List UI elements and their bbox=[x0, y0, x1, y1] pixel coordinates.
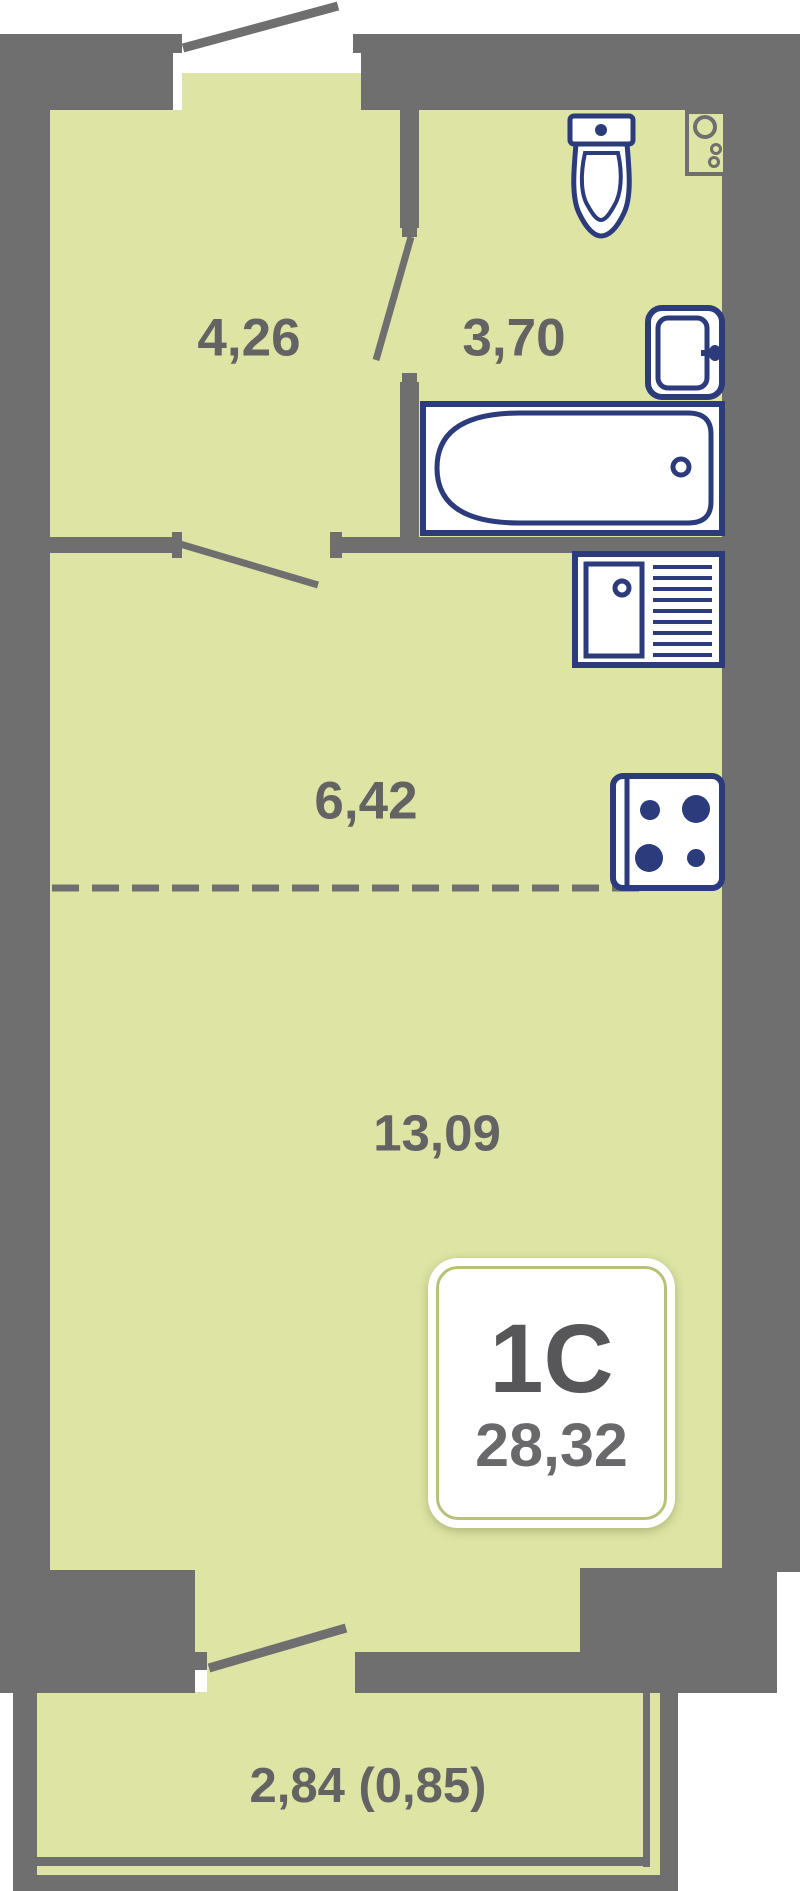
floor-plan-drawing bbox=[0, 0, 800, 1891]
entrance-door-icon bbox=[183, 6, 338, 48]
bathtub-icon bbox=[423, 404, 722, 533]
room-area-hallway: 4,26 bbox=[197, 308, 300, 369]
toilet-icon bbox=[570, 116, 633, 236]
plan-total-area: 28,32 bbox=[475, 1415, 628, 1476]
kitchen-sink-icon bbox=[575, 554, 722, 665]
room-area-living: 13,09 bbox=[373, 1104, 501, 1163]
plan-type-label: 1С bbox=[490, 1310, 614, 1407]
room-area-balcony: 2,84 (0,85) bbox=[250, 1758, 487, 1814]
plan-type-badge-frame: 1С 28,32 bbox=[436, 1266, 667, 1520]
floor-plan: 4,26 3,70 6,42 13,09 2,84 (0,85) 1С 28,3… bbox=[0, 0, 800, 1891]
vent-shaft-icon bbox=[687, 112, 725, 174]
stove-icon bbox=[613, 776, 722, 888]
room-area-kitchen: 6,42 bbox=[314, 771, 417, 832]
room-area-bathroom: 3,70 bbox=[462, 308, 565, 369]
plan-type-badge: 1С 28,32 bbox=[428, 1258, 675, 1528]
washbasin-icon bbox=[648, 308, 722, 397]
